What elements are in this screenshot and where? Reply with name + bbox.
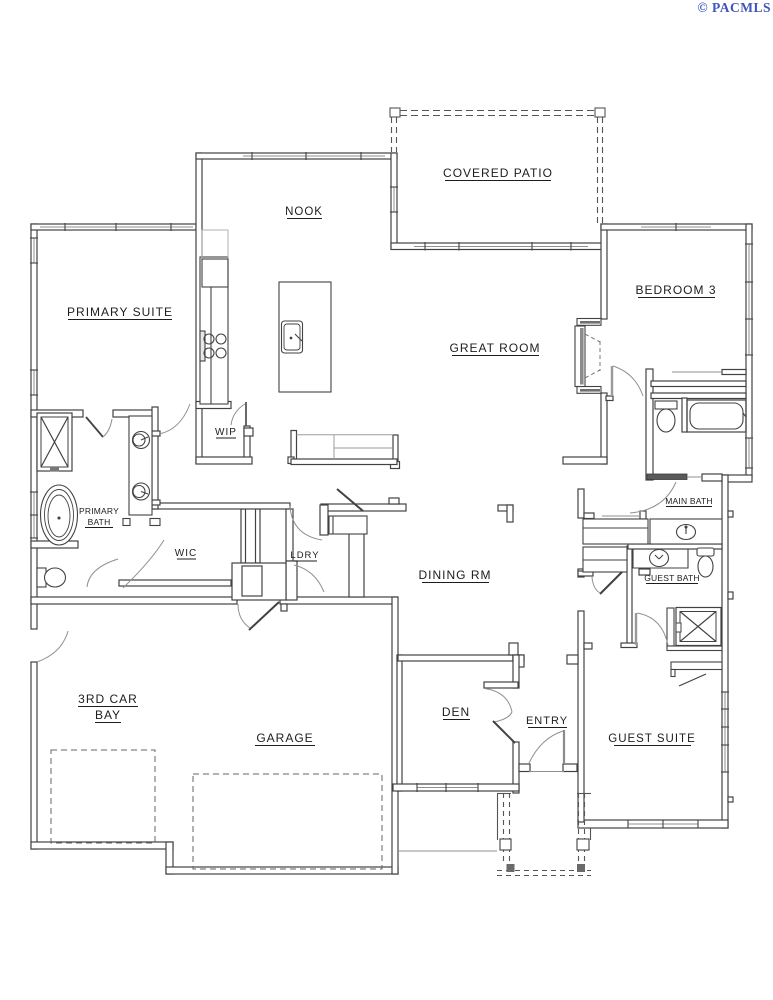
svg-text:BATH: BATH (88, 517, 111, 527)
svg-text:WIP: WIP (215, 427, 237, 438)
svg-text:NOOK: NOOK (285, 206, 323, 218)
svg-text:GUEST BATH: GUEST BATH (644, 573, 700, 583)
svg-text:PRIMARY: PRIMARY (79, 506, 119, 516)
svg-text:DEN: DEN (442, 705, 470, 719)
svg-text:PRIMARY SUITE: PRIMARY SUITE (67, 305, 173, 319)
svg-text:3RD CAR: 3RD CAR (78, 692, 138, 706)
svg-text:LDRY: LDRY (290, 550, 319, 561)
svg-text:BEDROOM 3: BEDROOM 3 (635, 283, 716, 297)
svg-text:GUEST SUITE: GUEST SUITE (608, 733, 695, 745)
svg-text:GARAGE: GARAGE (256, 731, 313, 745)
svg-text:ENTRY: ENTRY (526, 715, 568, 727)
svg-text:© PACMLS: © PACMLS (698, 0, 771, 15)
svg-text:DINING RM: DINING RM (419, 568, 492, 582)
svg-text:BAY: BAY (95, 708, 121, 722)
svg-text:MAIN BATH: MAIN BATH (665, 496, 712, 506)
svg-text:WIC: WIC (175, 548, 197, 559)
svg-text:GREAT ROOM: GREAT ROOM (450, 341, 541, 355)
svg-text:COVERED PATIO: COVERED PATIO (443, 166, 553, 180)
